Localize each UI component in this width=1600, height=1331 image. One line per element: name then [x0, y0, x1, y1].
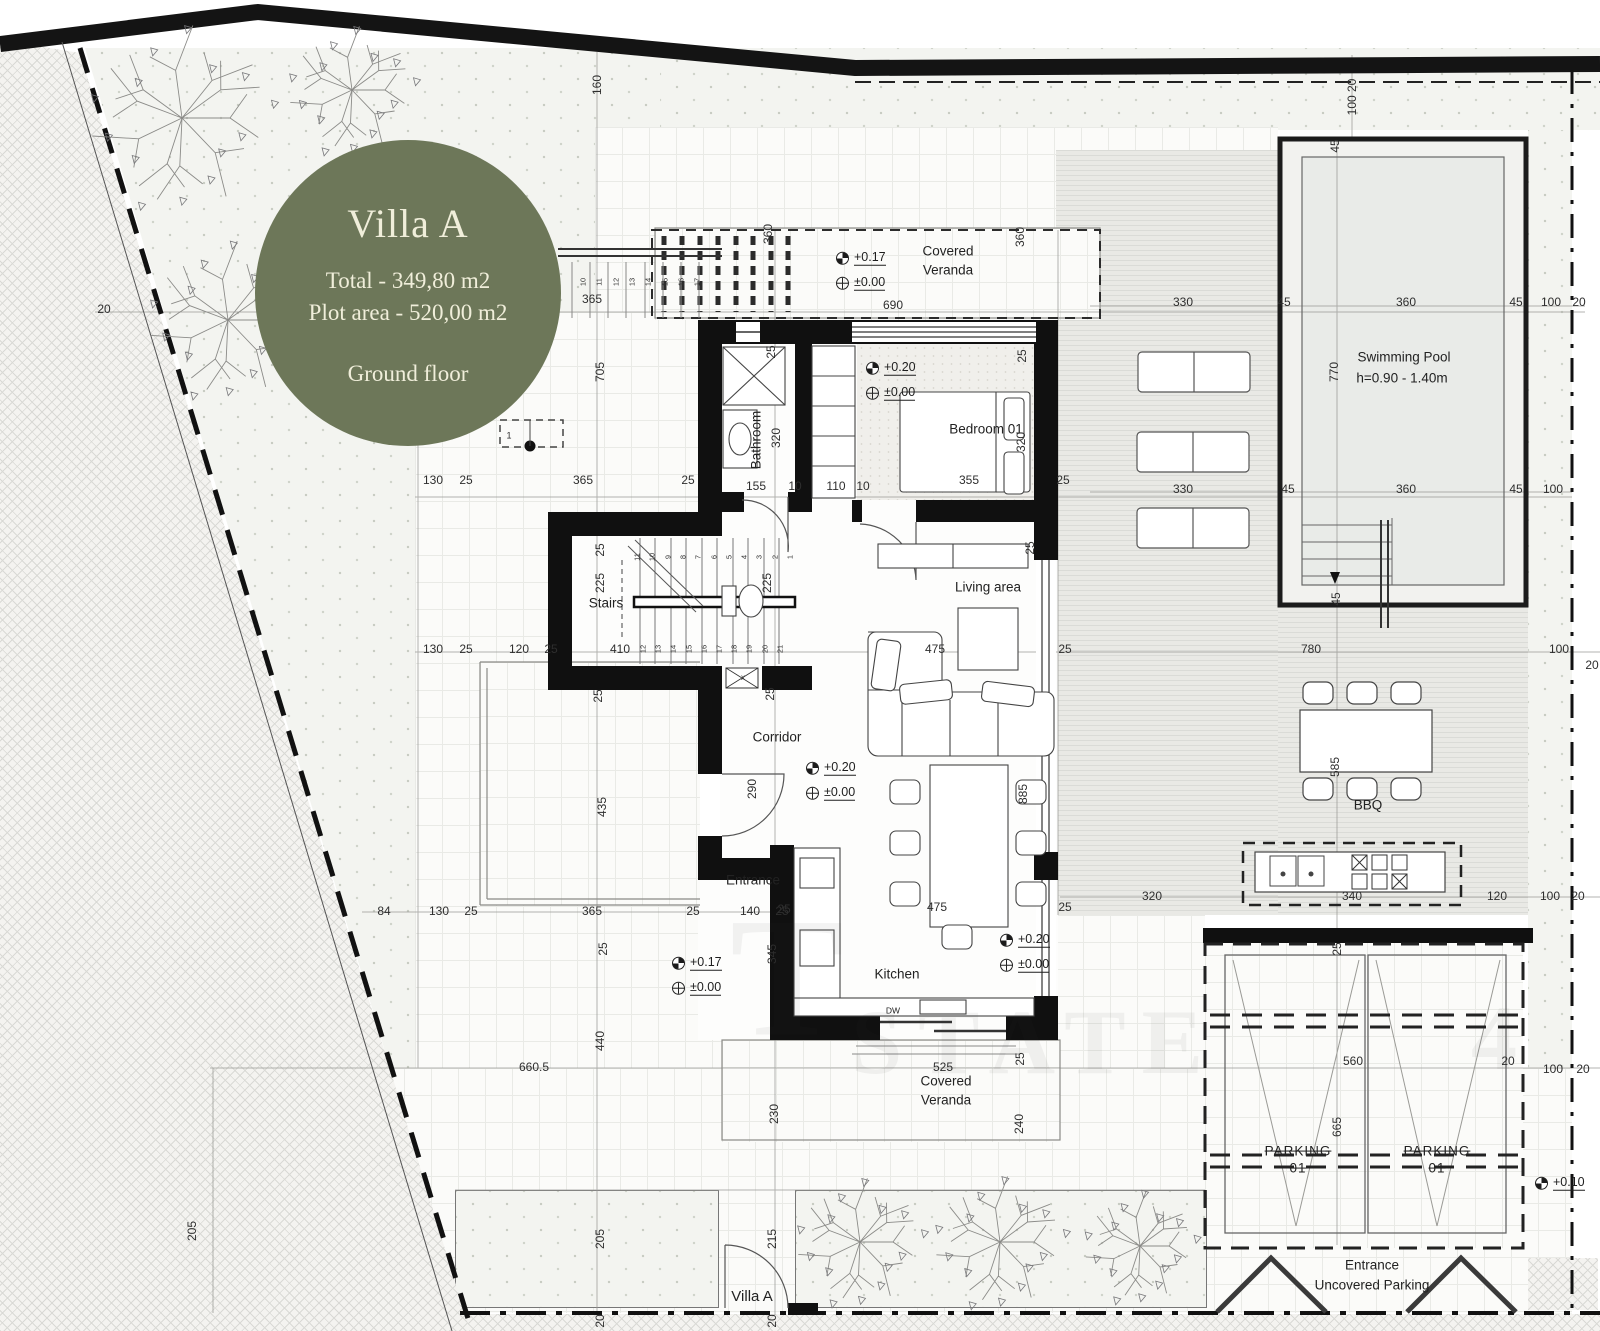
level-value: +0.17	[690, 956, 722, 971]
level-marker-icon	[866, 362, 879, 375]
dimension-label: 410	[610, 643, 630, 655]
dimension-label: 240	[1013, 1114, 1025, 1134]
room-label: PARKING	[1265, 1145, 1332, 1160]
room-label: Bathroom	[750, 411, 765, 470]
watermark-text: 4	[1471, 985, 1533, 1091]
tree-foliage-icon	[936, 1177, 1071, 1310]
level-marker-icon	[806, 762, 819, 775]
badge-plot-area: Plot area - 520,00 m2	[309, 300, 508, 326]
room-label: Stairs	[589, 597, 624, 612]
level-marker: ±0.00	[672, 981, 721, 996]
dimension-label: 25	[765, 345, 777, 358]
level-marker-icon	[836, 252, 849, 265]
dimension-label: 45	[1330, 592, 1342, 605]
dimension-label: 475	[927, 901, 947, 913]
dimension-label: 10	[788, 480, 801, 492]
dimension-label: 365	[582, 293, 602, 305]
level-marker-icon	[1000, 959, 1013, 972]
stair-tread-number: 18	[730, 645, 738, 653]
dimension-label: 25	[459, 474, 472, 486]
level-value: ±0.00	[854, 276, 885, 291]
stair-tread-number: 20	[761, 645, 769, 653]
stair-tread-number: 2	[771, 555, 779, 559]
stair-tread-number: 4	[740, 555, 748, 559]
dimension-label: 205	[594, 1229, 606, 1249]
level-value: +0.10	[1553, 1176, 1585, 1191]
dimension-label: 355	[959, 474, 979, 486]
level-marker: ±0.00	[1000, 958, 1049, 973]
dimension-label: 25	[594, 543, 606, 556]
stair-tread-number: 3	[756, 555, 764, 559]
dimension-label: 225	[594, 573, 606, 593]
level-marker-icon	[672, 957, 685, 970]
level-value: ±0.00	[690, 981, 721, 996]
level-marker: ±0.00	[836, 276, 885, 291]
dimension-label: 20	[1571, 890, 1584, 902]
level-marker-icon	[1000, 934, 1013, 947]
stair-tread-number: 16	[700, 645, 708, 653]
dimension-label: 20	[1572, 296, 1585, 308]
dimension-label: 20	[1576, 1063, 1589, 1075]
dimension-label: 25	[681, 474, 694, 486]
living-furniture	[868, 544, 1054, 756]
badge-total-area: Total - 349,80 m2	[326, 268, 490, 294]
room-label: Swimming Pool	[1357, 351, 1450, 366]
dimension-label: 435	[596, 797, 608, 817]
dimension-label: 100	[1543, 1063, 1563, 1075]
level-value: +0.20	[1018, 933, 1050, 948]
dimension-label: 20	[594, 1314, 606, 1327]
dimension-label: 25	[1056, 474, 1069, 486]
dimension-label: 25	[459, 643, 472, 655]
bbq-table	[1300, 682, 1432, 800]
room-label: Bedroom 01	[949, 423, 1023, 438]
stair-tread-number: 12	[639, 645, 647, 653]
stair-tread-number: 7	[694, 555, 702, 559]
dimension-label: 585	[1329, 757, 1341, 777]
level-value: ±0.00	[884, 386, 915, 401]
stair-tread-number: 13	[654, 645, 662, 653]
dimension-label: 360	[762, 224, 774, 244]
outdoor-step-number: 13	[628, 278, 636, 286]
level-marker: +0.20	[866, 361, 916, 376]
badge-title: Villa A	[347, 200, 468, 247]
stair-tread-number: 14	[670, 645, 678, 653]
stair-tread-number: 6	[710, 555, 718, 559]
room-label: Veranda	[921, 1094, 971, 1109]
level-marker: +0.17	[672, 956, 722, 971]
tree-foliage-icon	[1085, 1190, 1201, 1305]
dimension-label: 20	[766, 1314, 778, 1327]
dimension-label: 25	[544, 643, 557, 655]
dimension-label: 100	[1541, 296, 1561, 308]
room-label: 01	[1428, 1162, 1445, 1177]
dimension-label: 120	[1487, 890, 1507, 902]
watermark-text: STATE	[851, 989, 1219, 1095]
dimension-label: 660.5	[519, 1061, 549, 1073]
room-label: Living area	[955, 581, 1021, 596]
dimension-label: 330	[1173, 483, 1193, 495]
room-label: Veranda	[923, 264, 973, 279]
dimension-label: 770	[1328, 362, 1340, 382]
dimension-label: 1	[506, 432, 511, 441]
room-label: 01	[1289, 1162, 1306, 1177]
dimension-label: x	[741, 674, 745, 682]
level-marker-icon	[1535, 1177, 1548, 1190]
stair-tread-number: 19	[746, 645, 754, 653]
tree-icon	[290, 26, 405, 146]
outdoor-step-number: 15	[661, 278, 669, 286]
level-marker-icon	[836, 277, 849, 290]
level-marker: +0.20	[806, 761, 856, 776]
dimension-label: 45	[1509, 483, 1522, 495]
dimension-label: 100 20	[1346, 79, 1358, 116]
dimension-label: 320	[1142, 890, 1162, 902]
outdoor-step-number: 10	[579, 278, 587, 286]
tree-foliage-icon	[290, 27, 421, 156]
dimension-label: 560	[1343, 1055, 1363, 1067]
outdoor-step-number: 14	[644, 278, 652, 286]
stair-tread-number: 8	[679, 555, 687, 559]
dimension-label: 155	[746, 480, 766, 492]
tree-icon	[1086, 1190, 1187, 1295]
level-value: ±0.00	[824, 786, 855, 801]
dimension-label: 45	[1281, 483, 1294, 495]
level-marker-icon	[806, 787, 819, 800]
tree-icon	[936, 1177, 1055, 1300]
room-label: Entrance	[1345, 1259, 1399, 1274]
badge-floor: Ground floor	[348, 361, 469, 387]
dimension-label: 100	[1549, 643, 1569, 655]
dimension-label: 205	[186, 1221, 198, 1241]
dimension-label: 110	[826, 480, 845, 492]
dimension-label: 25	[1016, 349, 1028, 362]
dimension-label: 45	[1277, 296, 1290, 308]
dimension-label: 365	[573, 474, 593, 486]
dimension-label: 130	[423, 474, 443, 486]
dimension-label: 665	[1331, 1117, 1343, 1137]
room-label: BBQ	[1354, 799, 1383, 814]
dimension-label: 320	[770, 428, 782, 448]
plan-drawing	[0, 0, 1600, 1331]
dimension-label: 100	[1543, 483, 1563, 495]
dimension-label: 100	[1540, 890, 1560, 902]
dimension-label: 25	[686, 905, 699, 917]
stair-tread-number: 17	[715, 645, 723, 653]
dimension-label: 705	[594, 362, 606, 382]
tree-icon	[798, 1178, 913, 1298]
room-label: Kitchen	[874, 968, 919, 983]
dimension-label: 320	[1015, 432, 1027, 452]
level-marker: +0.17	[836, 251, 886, 266]
dimension-label: 330	[1173, 296, 1193, 308]
dimension-label: 25	[1331, 942, 1343, 955]
level-value: +0.20	[884, 361, 916, 376]
dimension-label: 160	[591, 75, 603, 95]
dimension-label: 290	[746, 779, 758, 799]
room-label: Villa A	[731, 1289, 772, 1306]
dimension-label: 45	[1509, 296, 1522, 308]
watermark-text: T	[730, 881, 859, 1076]
dimension-label: 365	[582, 905, 602, 917]
stair-tread-number: 15	[685, 645, 693, 653]
stair-tread-number: 10	[649, 553, 657, 561]
dimension-label: 130	[429, 905, 449, 917]
stair-tread-number: 11	[633, 553, 641, 561]
tree-foliage-icon	[798, 1179, 929, 1308]
outdoor-step-number: 17	[693, 278, 701, 286]
sun-loungers	[1137, 352, 1250, 548]
level-value: ±0.00	[1018, 958, 1049, 973]
dimension-label: 25	[592, 689, 604, 702]
dimension-label: 25	[1058, 901, 1071, 913]
level-value: +0.17	[854, 251, 886, 266]
dimension-label: 20	[1585, 659, 1598, 671]
project-badge: Villa A Total - 349,80 m2 Plot area - 52…	[255, 140, 561, 446]
dimension-label: 440	[594, 1031, 606, 1051]
room-label: Uncovered Parking	[1315, 1279, 1430, 1294]
room-label: Corridor	[753, 731, 802, 746]
level-value: +0.20	[824, 761, 856, 776]
dimension-label: 340	[1342, 890, 1362, 902]
stair-tread-number: 21	[776, 645, 784, 653]
level-marker: ±0.00	[806, 786, 855, 801]
dimension-label: 20	[97, 303, 110, 315]
dimension-label: 215	[766, 1229, 778, 1249]
level-marker-icon	[866, 387, 879, 400]
dimension-label: 690	[883, 299, 903, 311]
room-label: PARKING	[1404, 1145, 1471, 1160]
dimension-label: 360	[1396, 483, 1416, 495]
dimension-label: 25	[764, 687, 776, 700]
dimension-label: 225	[761, 573, 773, 593]
stair-tread-number: 1	[786, 555, 794, 559]
dimension-label: 780	[1301, 643, 1321, 655]
dimension-label: 84	[377, 905, 390, 917]
dimension-label: 25	[1024, 541, 1036, 554]
dimension-label: 25	[1058, 643, 1071, 655]
dimension-label: 360	[1396, 296, 1416, 308]
dimension-label: 25	[597, 942, 609, 955]
stair-tread-number: 9	[664, 555, 672, 559]
dimension-label: 25	[464, 905, 477, 917]
dimension-label: 230	[768, 1104, 780, 1124]
level-marker: +0.10	[1535, 1176, 1585, 1191]
room-label: Covered	[922, 245, 973, 260]
floor-plan-canvas: Villa A Total - 349,80 m2 Plot area - 52…	[0, 0, 1600, 1331]
dimension-label: 885	[1017, 784, 1029, 804]
dimension-label: 45	[1329, 139, 1341, 152]
level-marker-icon	[672, 982, 685, 995]
dimension-label: 130	[423, 643, 443, 655]
dimension-label: 10	[856, 480, 869, 492]
dimension-label: 475	[925, 643, 945, 655]
level-marker: +0.20	[1000, 933, 1050, 948]
dimension-label: 120	[509, 643, 529, 655]
dimension-label: 360	[1014, 227, 1026, 247]
stair-tread-number: 5	[725, 555, 733, 559]
outdoor-step-number: 12	[612, 278, 620, 286]
room-label: h=0.90 - 1.40m	[1356, 372, 1447, 387]
outdoor-step-number: 11	[596, 278, 604, 286]
outdoor-step-number: 16	[677, 278, 685, 286]
level-marker: ±0.00	[866, 386, 915, 401]
